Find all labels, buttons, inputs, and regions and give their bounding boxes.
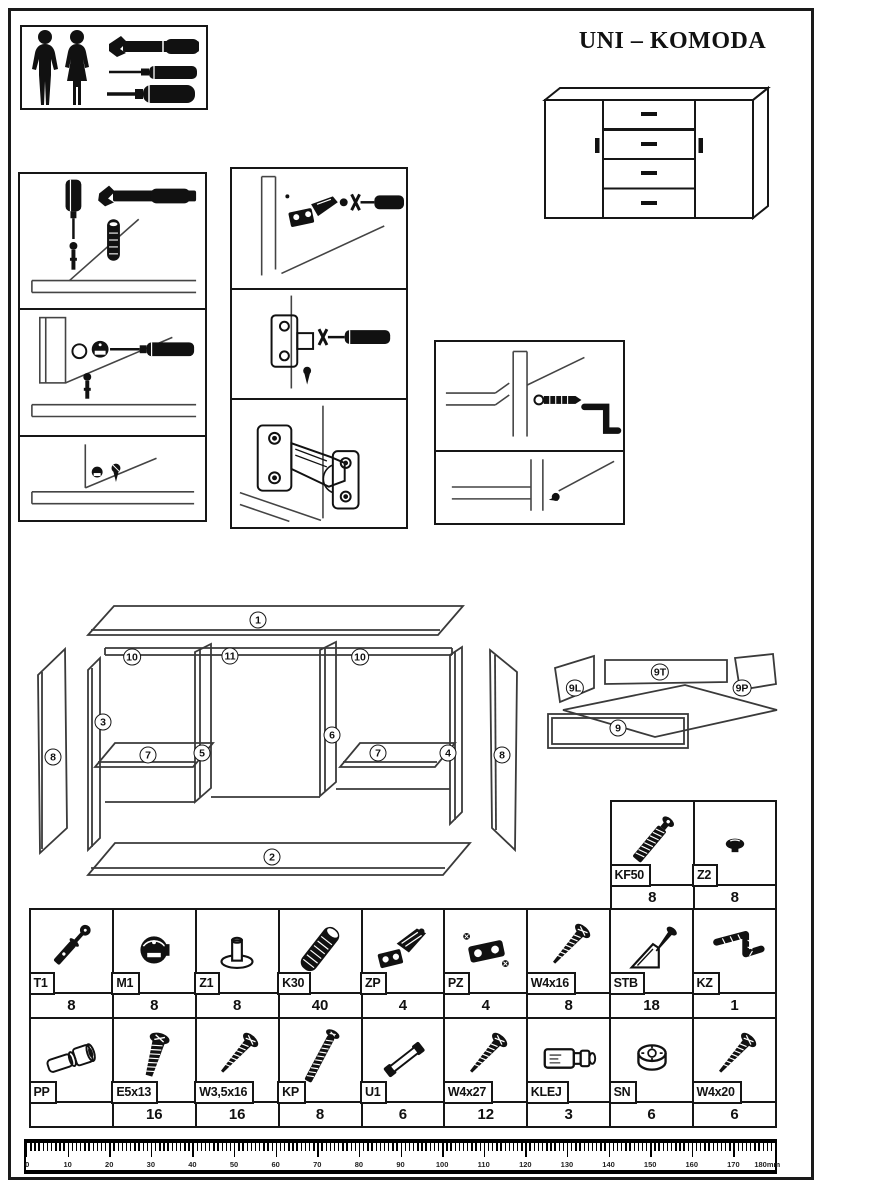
ruler-tick — [584, 1143, 585, 1151]
right-side-panel — [450, 647, 462, 824]
hardware-item-cell: STB — [610, 909, 693, 993]
ruler-tick — [97, 1143, 98, 1151]
part-quantity: 8 — [30, 993, 113, 1018]
ruler-tick — [80, 1143, 81, 1151]
ruler-tick — [542, 1143, 543, 1151]
ruler-tick — [621, 1143, 622, 1151]
screw-icon — [303, 366, 311, 384]
hardware-item-cell: W4x27 — [444, 1018, 527, 1102]
ruler-tick — [500, 1143, 501, 1151]
ruler-tick — [205, 1143, 206, 1151]
commode-drawing — [535, 82, 780, 227]
ruler-tick — [226, 1143, 227, 1151]
ruler-tick — [296, 1143, 297, 1151]
ruler-label: 160 — [686, 1160, 699, 1169]
ruler-tick — [263, 1143, 264, 1151]
part-code: Z1 — [194, 972, 220, 995]
ruler-tick — [434, 1143, 435, 1151]
ruler-tick — [763, 1143, 764, 1151]
part-code: SN — [609, 1081, 638, 1104]
ruler-tick — [143, 1143, 144, 1151]
ruler-tick — [754, 1143, 755, 1151]
exploded-carcass-diagram — [25, 590, 475, 890]
ruler-label: 130 — [561, 1160, 574, 1169]
ruler-tick — [717, 1143, 718, 1151]
ruler-tick — [363, 1143, 364, 1151]
ruler-tick — [480, 1143, 481, 1151]
ruler-tick — [588, 1143, 589, 1151]
hardware-item-cell: Z2 — [694, 801, 777, 885]
hinge-plate-icon — [271, 315, 313, 366]
ruler-label: 140 — [602, 1160, 615, 1169]
instruction-sheet: UNI – KOMODA — [0, 0, 877, 1200]
ruler-tick — [167, 1143, 168, 1151]
ruler-tick — [609, 1143, 610, 1157]
ruler-tick — [663, 1143, 664, 1151]
ruler-tick — [438, 1143, 439, 1151]
ruler-tick — [34, 1143, 35, 1151]
ruler-tick — [342, 1143, 343, 1151]
ruler-tick — [26, 1143, 27, 1157]
people-tools-illustration — [23, 28, 206, 107]
screw-icon — [548, 492, 559, 500]
ruler-tick — [650, 1143, 651, 1157]
step-hinge-plate-panel — [230, 288, 408, 401]
ruler-tick — [326, 1143, 327, 1151]
ruler-tick — [592, 1143, 593, 1151]
part-code: KF50 — [610, 864, 651, 887]
ruler-tick — [513, 1143, 514, 1151]
step-confirmat-panel — [434, 340, 625, 452]
ruler-tick — [30, 1143, 31, 1151]
ruler-tick — [255, 1143, 256, 1151]
screwdriver-icon — [107, 85, 195, 103]
ruler-tick — [767, 1143, 768, 1151]
ruler-tick — [613, 1143, 614, 1151]
ruler-tick — [733, 1143, 734, 1157]
ruler-tick — [38, 1143, 39, 1151]
screwdriver-icon — [109, 66, 197, 79]
hardware-item-cell: PZ — [444, 909, 527, 993]
ruler-tick — [72, 1143, 73, 1151]
ruler-tick — [505, 1143, 506, 1151]
step-fasteners-panel — [18, 435, 207, 522]
ruler-tick — [330, 1143, 331, 1151]
part-code: KLEJ — [526, 1081, 569, 1104]
ruler-tick — [442, 1143, 443, 1157]
ruler-tick — [671, 1143, 672, 1151]
part-quantity: 8 — [113, 993, 196, 1018]
ruler-tick — [629, 1143, 630, 1151]
confirmat-screw-icon — [534, 396, 581, 405]
ruler-tick — [625, 1143, 626, 1151]
ruler-tick — [758, 1143, 759, 1151]
ruler-tick — [509, 1143, 510, 1151]
screw-icon — [339, 198, 347, 206]
ruler-tick — [222, 1143, 223, 1151]
ruler-tick — [459, 1143, 460, 1151]
ruler-tick — [163, 1143, 164, 1151]
ruler-label: 90 — [396, 1160, 404, 1169]
ruler-tick — [376, 1143, 377, 1151]
part-number-label: 11 — [221, 648, 238, 665]
ruler-tick — [380, 1143, 381, 1151]
part-quantity: 6 — [362, 1102, 445, 1127]
ruler-tick — [600, 1143, 601, 1151]
ruler-scale: 0102030405060708090100110120130140150160… — [24, 1139, 777, 1172]
ruler-tick — [213, 1143, 214, 1151]
ruler-tick — [346, 1143, 347, 1151]
hinge-assembled-icon — [257, 425, 358, 508]
part-code: U1 — [360, 1081, 387, 1104]
ruler-tick — [713, 1143, 714, 1151]
part-quantity: 3 — [527, 1102, 610, 1127]
ruler-tick — [313, 1143, 314, 1151]
ruler-tick — [367, 1143, 368, 1151]
ruler-tick — [101, 1143, 102, 1151]
ruler-label: 50 — [230, 1160, 238, 1169]
ruler-tick — [571, 1143, 572, 1151]
part-code: E5x13 — [111, 1081, 158, 1104]
ruler-tick — [172, 1143, 173, 1151]
hammer-icon — [109, 36, 199, 57]
ruler-tick — [492, 1143, 493, 1151]
part-number-label: 1 — [250, 612, 267, 629]
part-number-label: 7 — [140, 747, 157, 764]
hardware-item-cell: T1 — [30, 909, 113, 993]
ruler-tick — [321, 1143, 322, 1151]
ruler-tick — [475, 1143, 476, 1151]
screw-icon — [111, 464, 120, 482]
ruler-tick — [517, 1143, 518, 1151]
hardware-item-cell: PP — [30, 1018, 113, 1102]
part-code: PP — [29, 1081, 57, 1104]
ruler-tick — [401, 1143, 402, 1157]
ruler-tick — [658, 1143, 659, 1151]
part-quantity: 16 — [196, 1102, 279, 1127]
ruler-tick — [430, 1143, 431, 1151]
ruler-tick — [130, 1143, 131, 1151]
ruler-tick — [159, 1143, 160, 1151]
part-quantity: 4 — [362, 993, 445, 1018]
part-quantity: 6 — [693, 1102, 776, 1127]
ruler-tick — [467, 1143, 468, 1151]
ruler-tick — [708, 1143, 709, 1151]
part-code: T1 — [29, 972, 55, 995]
dowel-icon — [107, 219, 120, 261]
ruler-tick — [455, 1143, 456, 1151]
ruler-tick — [351, 1143, 352, 1151]
ruler-tick — [646, 1143, 647, 1151]
ruler-tick — [109, 1143, 110, 1157]
ruler-tick — [575, 1143, 576, 1151]
ruler-tick — [238, 1143, 239, 1151]
ruler-tick — [409, 1143, 410, 1151]
ruler-tick — [280, 1143, 281, 1151]
hardware-item-cell: KF50 — [611, 801, 694, 885]
ruler-tick — [638, 1143, 639, 1151]
part-number-label: 9P — [733, 680, 752, 697]
screwdriver-icon — [65, 180, 81, 239]
part-code: KZ — [692, 972, 720, 995]
ruler-tick — [450, 1143, 451, 1151]
part-quantity: 16 — [113, 1102, 196, 1127]
hardware-item-cell: W4x16 — [527, 909, 610, 993]
screwdriver-icon — [110, 342, 194, 356]
ruler-tick — [122, 1143, 123, 1151]
ruler-tick — [742, 1143, 743, 1151]
hardware-small-table: KF50 Z288 — [610, 800, 777, 911]
ruler-tick — [176, 1143, 177, 1151]
part-code: M1 — [111, 972, 140, 995]
ruler-tick — [138, 1143, 139, 1151]
ruler-tick — [371, 1143, 372, 1151]
hardware-item-cell: SN — [610, 1018, 693, 1102]
ruler-base-line — [24, 1170, 777, 1174]
ruler-tick — [529, 1143, 530, 1151]
hardware-item-cell: KLEJ — [527, 1018, 610, 1102]
ruler-label: 70 — [313, 1160, 321, 1169]
ruler-tick — [617, 1143, 618, 1151]
hardware-item-cell: W3,5x16 — [196, 1018, 279, 1102]
ruler-tick — [180, 1143, 181, 1151]
ruler-label: 10 — [63, 1160, 71, 1169]
man-silhouette-icon — [32, 30, 58, 105]
ruler-label: 0 — [25, 1160, 29, 1169]
ruler-tick — [496, 1143, 497, 1151]
ruler-tick — [642, 1143, 643, 1151]
ruler-tick — [305, 1143, 306, 1151]
step-confirmat-illustration — [438, 343, 622, 448]
ruler-tick — [242, 1143, 243, 1151]
part-code: PZ — [443, 972, 470, 995]
step-cam-lock-illustration — [22, 311, 204, 434]
screwdriver-icon — [319, 329, 390, 345]
right-door-handle — [699, 138, 704, 153]
ruler-tick — [683, 1143, 684, 1151]
part-number-label: 3 — [95, 714, 112, 731]
ruler-tick — [47, 1143, 48, 1151]
ruler-tick — [775, 1143, 776, 1157]
ruler-tick — [301, 1143, 302, 1151]
ruler-label: 110 — [478, 1160, 490, 1169]
woman-silhouette-icon — [65, 30, 89, 105]
step-hinge-assembled-panel — [230, 398, 408, 529]
step-back-screw-panel — [434, 450, 625, 525]
ruler-tick — [284, 1143, 285, 1151]
ruler-tick — [567, 1143, 568, 1157]
ruler-tick — [463, 1143, 464, 1151]
left-door-handle — [595, 138, 600, 153]
part-quantity: 18 — [610, 993, 693, 1018]
hardware-item-cell: E5x13 — [113, 1018, 196, 1102]
hardware-item-cell: K30 — [279, 909, 362, 993]
ruler-tick — [550, 1143, 551, 1151]
cam-lock-icon — [91, 467, 102, 478]
ruler-tick — [525, 1143, 526, 1157]
hardware-item-cell: ZP — [362, 909, 445, 993]
step-hinge-plate-illustration — [234, 291, 405, 397]
part-code: KP — [277, 1081, 306, 1104]
cam-bolt-icon — [69, 242, 77, 270]
ruler-tick — [147, 1143, 148, 1151]
part-quantity: 8 — [527, 993, 610, 1018]
part-quantity: 12 — [444, 1102, 527, 1127]
ruler-tick — [338, 1143, 339, 1151]
ruler-tick — [696, 1143, 697, 1151]
ruler-tick — [704, 1143, 705, 1151]
ruler-tick — [359, 1143, 360, 1157]
ruler-tick — [746, 1143, 747, 1151]
part-number-label: 7 — [370, 745, 387, 762]
ruler-tick — [355, 1143, 356, 1151]
ruler-tick — [184, 1143, 185, 1151]
part-code: W4x16 — [526, 972, 576, 995]
ruler-tick — [309, 1143, 310, 1151]
part-number-label: 4 — [440, 745, 457, 762]
ruler-tick — [276, 1143, 277, 1157]
ruler-tick — [725, 1143, 726, 1151]
ruler-tick — [546, 1143, 547, 1151]
right-door — [695, 100, 753, 218]
ruler-label: 120 — [519, 1160, 532, 1169]
ruler-tick — [292, 1143, 293, 1151]
ruler-tick — [750, 1143, 751, 1151]
step-hinge-door-panel — [230, 167, 408, 290]
ruler-tick — [446, 1143, 447, 1151]
allen-key-icon — [584, 407, 618, 431]
part-code: W3,5x16 — [194, 1081, 254, 1104]
part-quantity: 8 — [611, 885, 694, 910]
shelf-right — [340, 743, 455, 767]
ruler-tick — [267, 1143, 268, 1151]
part-quantity: 8 — [694, 885, 777, 910]
ruler-tick — [692, 1143, 693, 1157]
ruler-tick — [59, 1143, 60, 1151]
ruler-label: 60 — [271, 1160, 279, 1169]
partition-left — [195, 644, 211, 802]
part-quantity: 8 — [196, 993, 279, 1018]
ruler-tick — [84, 1143, 85, 1151]
hardware-table: T1 M1 Z1 K30 ZP PZ W4x16 — [29, 908, 777, 1128]
ruler-tick — [201, 1143, 202, 1151]
ruler-tick — [63, 1143, 64, 1151]
screwdriver-icon — [351, 194, 403, 210]
ruler-tick — [538, 1143, 539, 1151]
part-code: STB — [609, 972, 645, 995]
part-quantity: 4 — [444, 993, 527, 1018]
ruler-tick — [288, 1143, 289, 1151]
ruler-tick — [68, 1143, 69, 1157]
step-hinge-assembled-illustration — [234, 401, 405, 525]
part-number-label: 9 — [610, 720, 627, 737]
part-code: K30 — [277, 972, 311, 995]
ruler-label: 170 — [727, 1160, 740, 1169]
ruler-tick — [484, 1143, 485, 1157]
ruler-tick — [43, 1143, 44, 1151]
step-back-screw-illustration — [438, 453, 622, 521]
ruler-tick — [563, 1143, 564, 1151]
part-quantity — [30, 1102, 113, 1127]
part-number-label: 2 — [264, 849, 281, 866]
ruler-tick — [488, 1143, 489, 1151]
ruler-tick — [604, 1143, 605, 1151]
ruler-tick — [217, 1143, 218, 1151]
part-number-label: 10 — [123, 649, 141, 666]
ruler-tick — [209, 1143, 210, 1151]
part-code: W4x20 — [692, 1081, 742, 1104]
part-quantity: 40 — [279, 993, 362, 1018]
part-quantity: 8 — [279, 1102, 362, 1127]
ruler-tick — [197, 1143, 198, 1151]
ruler-tick — [51, 1143, 52, 1151]
part-code: W4x27 — [443, 1081, 493, 1104]
ruler-tick — [405, 1143, 406, 1151]
left-door — [545, 100, 603, 218]
ruler-tick — [596, 1143, 597, 1151]
ruler-tick — [247, 1143, 248, 1151]
hinge-icon — [288, 196, 338, 227]
ruler-label: 30 — [147, 1160, 155, 1169]
ruler-tick — [317, 1143, 318, 1157]
step-fasteners-illustration — [22, 438, 204, 518]
ruler-tick — [93, 1143, 94, 1151]
ruler-tick — [738, 1143, 739, 1151]
ruler-tick — [654, 1143, 655, 1151]
step-dowel-hammer-panel — [18, 172, 207, 310]
part-code: ZP — [360, 972, 387, 995]
ruler-tick — [579, 1143, 580, 1151]
ruler-tick — [105, 1143, 106, 1151]
ruler-tick — [188, 1143, 189, 1151]
hardware-item-cell: KP — [279, 1018, 362, 1102]
part-number-label: 10 — [351, 649, 369, 666]
left-side-panel — [88, 658, 100, 850]
people-tools-box — [20, 25, 208, 110]
ruler-tick — [392, 1143, 393, 1151]
ruler-tick — [521, 1143, 522, 1151]
ruler-tick — [634, 1143, 635, 1151]
ruler-tick — [771, 1143, 772, 1151]
part-number-label: 5 — [194, 745, 211, 762]
part-number-label: 6 — [324, 727, 341, 744]
ruler-tick — [76, 1143, 77, 1151]
ruler-tick — [251, 1143, 252, 1151]
page-title: UNI – KOMODA — [560, 28, 785, 55]
ruler-label: 80 — [355, 1160, 363, 1169]
ruler-tick — [396, 1143, 397, 1151]
ruler-tick — [118, 1143, 119, 1151]
part-quantity: 1 — [693, 993, 776, 1018]
hardware-item-cell: Z1 — [196, 909, 279, 993]
ruler-tick — [421, 1143, 422, 1151]
ruler-tick — [413, 1143, 414, 1151]
hardware-item-cell: KZ — [693, 909, 776, 993]
cam-lock-icon — [91, 340, 108, 357]
ruler-tick — [384, 1143, 385, 1151]
ruler-tick — [417, 1143, 418, 1151]
step-cam-lock-panel — [18, 308, 207, 438]
ruler-tick — [721, 1143, 722, 1151]
part-code: Z2 — [692, 864, 718, 887]
ruler-tick — [334, 1143, 335, 1151]
step-dowel-hammer-illustration — [22, 175, 204, 306]
ruler-tick — [667, 1143, 668, 1151]
ruler-tick — [675, 1143, 676, 1151]
ruler-tick — [151, 1143, 152, 1157]
ruler-tick — [471, 1143, 472, 1151]
hammer-icon — [98, 186, 196, 207]
